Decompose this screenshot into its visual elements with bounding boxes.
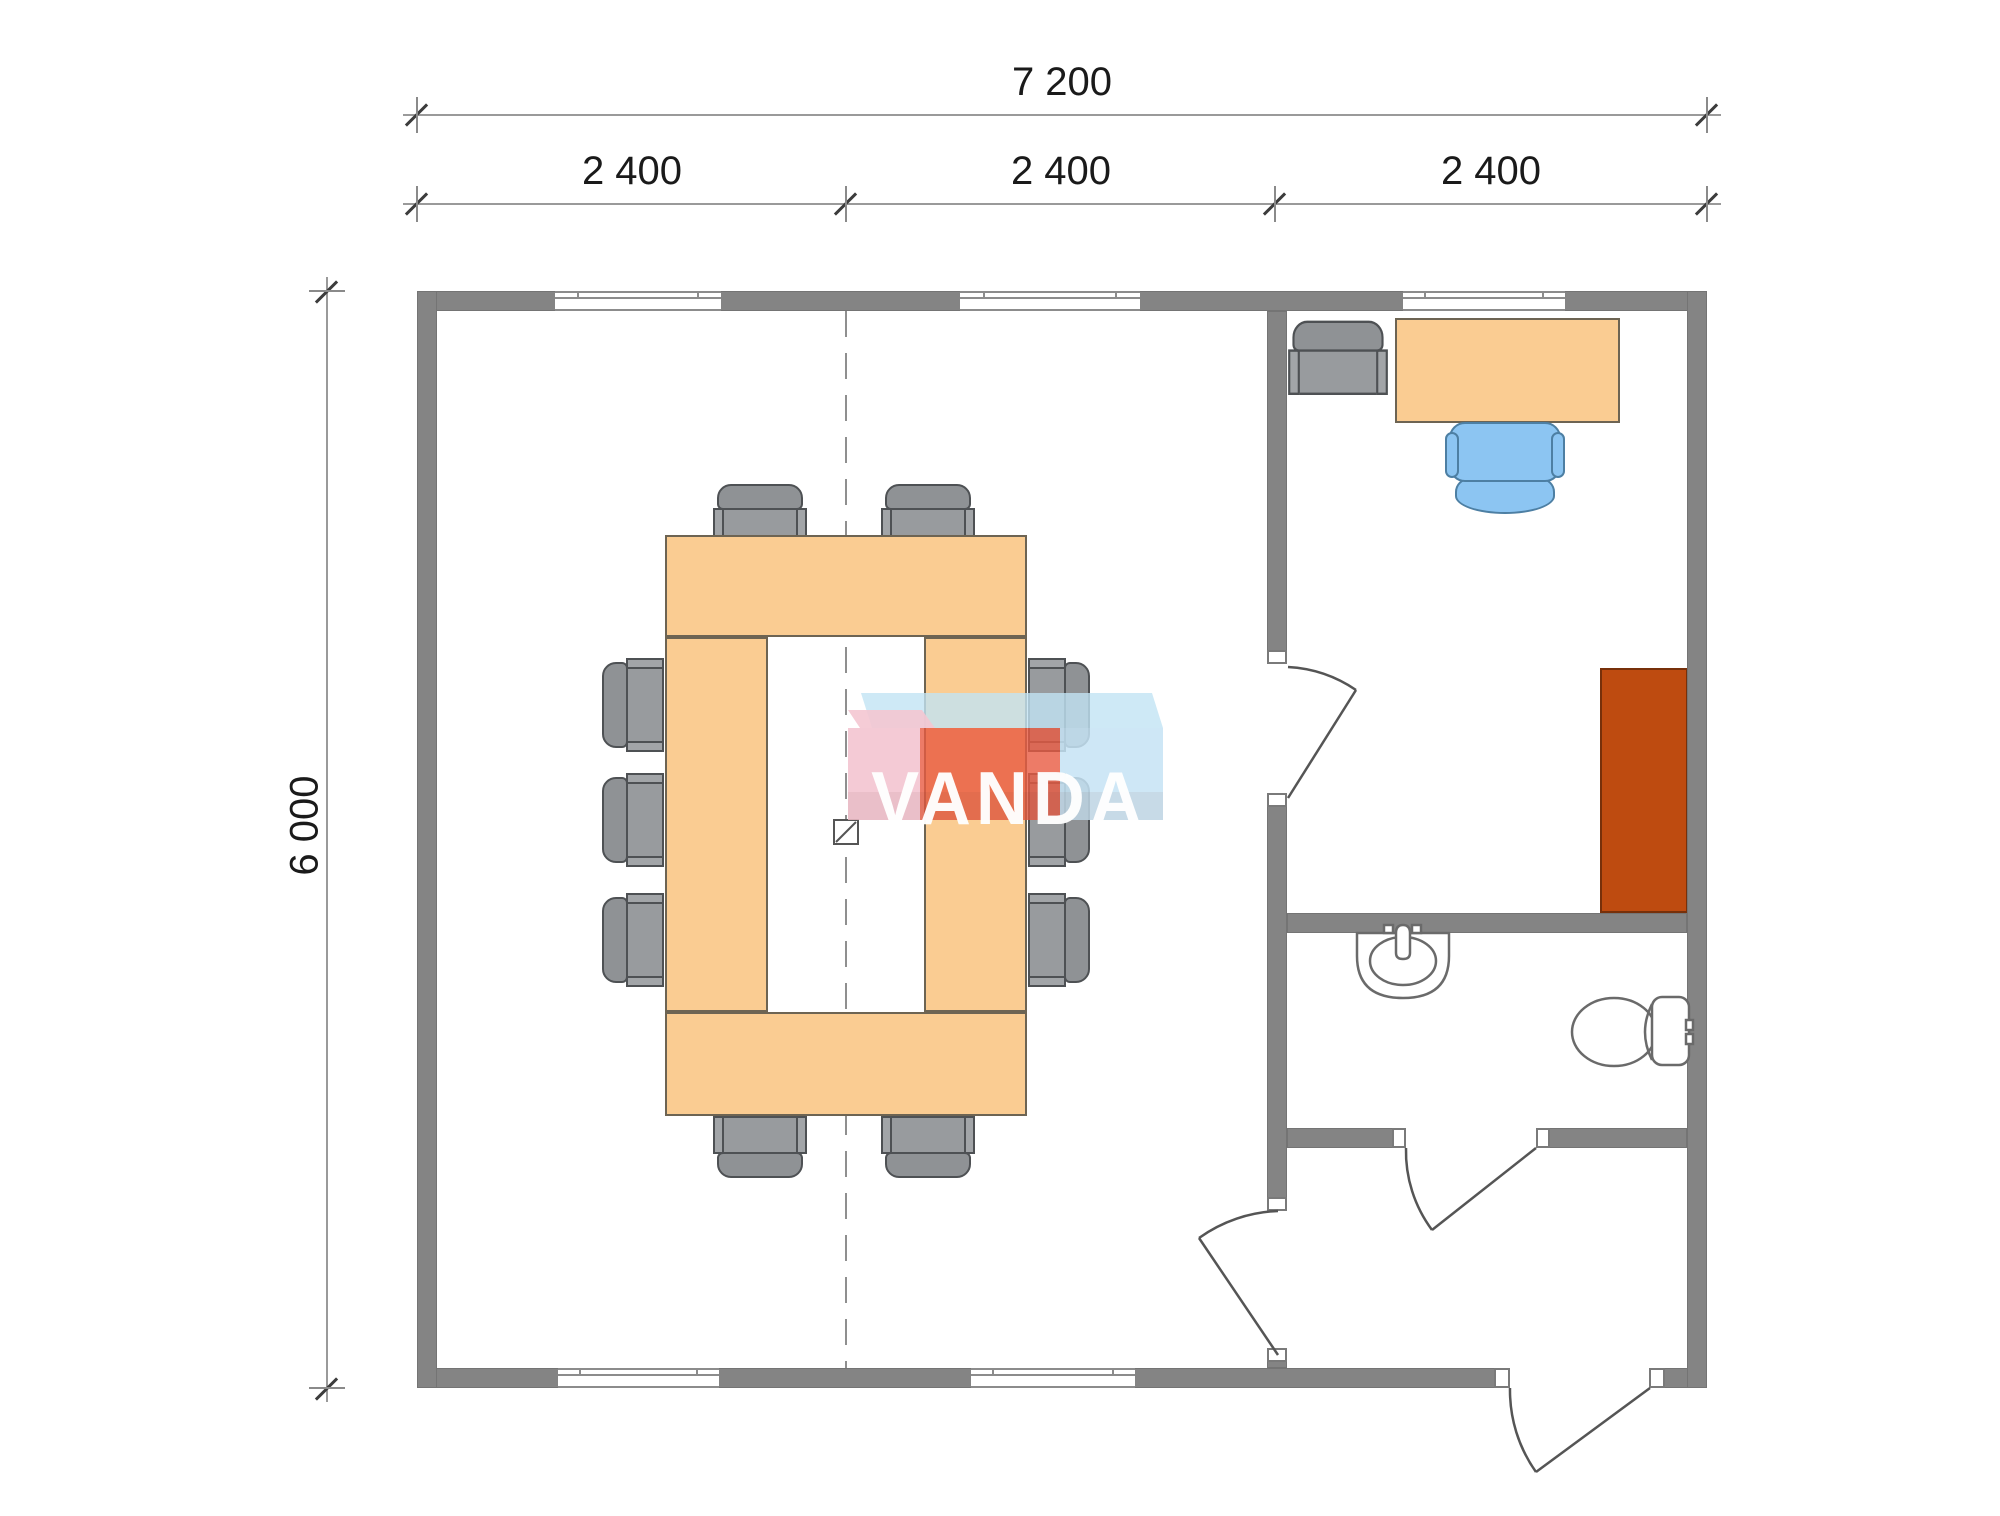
floor-plan: 7 200 2 400 2 400 2 400 6 000 <box>0 0 2000 1516</box>
door-jamb <box>1267 1197 1287 1211</box>
door-entrance <box>1510 1388 1650 1472</box>
dimension-line-modules <box>403 203 1721 205</box>
office-armchair <box>1288 321 1388 398</box>
conference-table-right-section <box>924 637 1027 1012</box>
dimension-witness <box>416 186 418 222</box>
desk-chair-seat <box>1449 422 1561 482</box>
conference-table-top-section <box>665 535 1027 637</box>
dimension-witness <box>1706 186 1708 222</box>
door-leaf <box>1536 1388 1650 1472</box>
dimension-witness <box>1706 97 1708 133</box>
window-top-1 <box>555 291 721 311</box>
chair-backrest <box>717 484 803 510</box>
dimension-witness <box>309 1387 345 1389</box>
door-opening-office <box>1267 650 1287 807</box>
door-jamb <box>1267 793 1287 807</box>
office-desk <box>1395 318 1620 423</box>
sink-icon <box>1357 925 1449 998</box>
wall-office-bathroom <box>1287 913 1687 933</box>
door-leaf <box>1288 690 1356 798</box>
wall-exterior-right <box>1687 291 1707 1388</box>
door-jamb <box>1536 1128 1550 1148</box>
door-swing-arc <box>1288 667 1356 690</box>
dimension-label-total-width: 7 200 <box>962 60 1162 105</box>
door-swing-arc <box>1406 1148 1432 1230</box>
cabinet <box>1600 668 1688 913</box>
door-opening-bathroom <box>1392 1128 1550 1148</box>
door-opening-hall <box>1267 1197 1287 1362</box>
window-bottom-1 <box>558 1368 719 1388</box>
column-symbol <box>833 819 859 845</box>
toilet-icon <box>1572 997 1693 1066</box>
dimension-label-height: 6 000 <box>283 726 328 926</box>
window-bottom-2 <box>971 1368 1135 1388</box>
watermark-front-pink <box>848 728 920 820</box>
wall-exterior-left <box>417 291 437 1388</box>
door-bathroom <box>1406 1148 1536 1230</box>
toilet-tank <box>1652 997 1689 1065</box>
window-top-3 <box>1403 291 1565 311</box>
dimension-label-module-3: 2 400 <box>1391 149 1591 194</box>
sink-basin <box>1370 937 1436 985</box>
door-office <box>1288 667 1356 798</box>
door-jamb <box>1267 650 1287 664</box>
conference-chair <box>602 658 666 752</box>
door-opening-entrance <box>1494 1368 1665 1388</box>
dimension-witness <box>1274 186 1276 222</box>
conference-chair <box>602 773 666 867</box>
door-jamb <box>1649 1368 1665 1388</box>
door-leaf <box>1432 1148 1536 1230</box>
dimension-witness <box>309 290 345 292</box>
sink-body <box>1357 933 1449 998</box>
dimension-label-module-1: 2 400 <box>532 149 732 194</box>
dimension-label-module-2: 2 400 <box>961 149 1161 194</box>
conference-chair <box>1026 773 1090 867</box>
dimension-witness <box>845 186 847 222</box>
conference-chair <box>1026 893 1090 987</box>
conference-table-bottom-section <box>665 1012 1027 1116</box>
desk-chair-armrest <box>1551 432 1565 478</box>
desk-chair <box>1445 420 1565 520</box>
toilet-seat-line <box>1645 1004 1652 1060</box>
door-jamb <box>1392 1128 1406 1148</box>
conference-chair <box>602 893 666 987</box>
door-swing-arc <box>1510 1388 1536 1472</box>
dimension-line-total-width <box>403 114 1721 116</box>
toilet-bowl <box>1572 998 1656 1066</box>
door-jamb <box>1267 1348 1287 1362</box>
conference-chair <box>1026 658 1090 752</box>
window-top-2 <box>960 291 1140 311</box>
desk-chair-backrest <box>1455 478 1555 514</box>
conference-chair <box>713 1114 807 1178</box>
conference-chair <box>881 1114 975 1178</box>
conference-table-left-section <box>665 637 768 1012</box>
door-jamb <box>1494 1368 1510 1388</box>
dimension-witness <box>416 97 418 133</box>
desk-chair-armrest <box>1445 432 1459 478</box>
